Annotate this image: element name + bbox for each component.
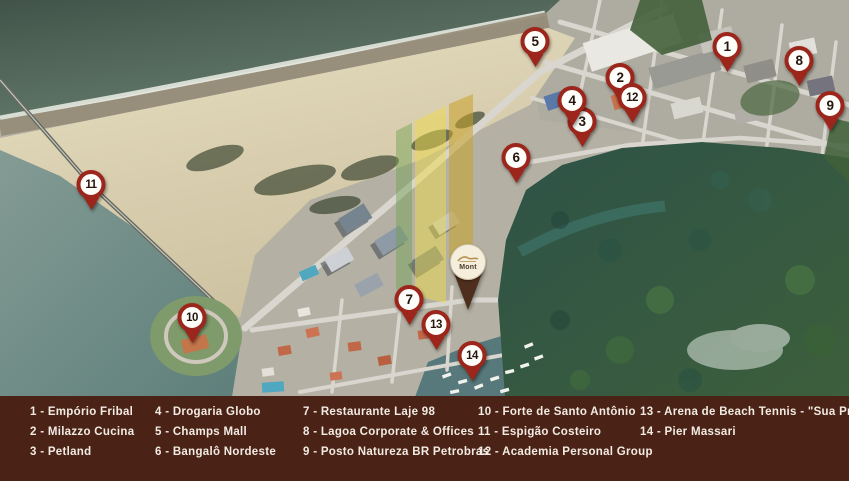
pin-tail-icon	[428, 337, 444, 350]
pin-number: 9	[816, 91, 845, 120]
pin-number: 1	[713, 32, 742, 61]
map-pin-1[interactable]: 1	[713, 32, 742, 72]
pin-number: 6	[502, 143, 531, 172]
location-map-page: Mont 1234567891011121314 1 - Empório Fri…	[0, 0, 849, 481]
logo-skyline-icon	[457, 254, 479, 263]
map-pin-4[interactable]: 4	[558, 86, 587, 126]
map-pin-11[interactable]: 11	[77, 170, 106, 210]
pin-tail-icon	[464, 368, 480, 381]
legend-item-5: 5 - Champs Mall	[155, 422, 276, 442]
legend-column-2: 4 - Drogaria Globo5 - Champs Mall6 - Ban…	[155, 402, 276, 462]
legend-item-9: 9 - Posto Natureza BR Petrobras	[303, 442, 489, 462]
development-logo: Mont	[450, 244, 486, 280]
pin-number: 8	[785, 46, 814, 75]
legend-column-5: 13 - Arena de Beach Tennis - "Sua Praia"…	[640, 402, 849, 442]
pin-tail-icon	[719, 59, 735, 72]
legend-item-2: 2 - Milazzo Cucina	[30, 422, 134, 442]
pin-tail-icon	[83, 197, 99, 210]
pin-tail-icon	[184, 330, 200, 343]
legend-bar: 1 - Empório Fribal2 - Milazzo Cucina3 - …	[0, 396, 849, 481]
map-pin-14[interactable]: 14	[458, 341, 487, 381]
legend-item-11: 11 - Espigão Costeiro	[478, 422, 653, 442]
pin-number: 12	[618, 83, 647, 112]
legend-item-12: 12 - Academia Personal Group	[478, 442, 653, 462]
pin-tail-icon	[527, 54, 543, 67]
pin-tail-icon	[401, 312, 417, 325]
legend-item-14: 14 - Pier Massari	[640, 422, 849, 442]
map-pin-13[interactable]: 13	[422, 310, 451, 350]
map-pin-12[interactable]: 12	[618, 83, 647, 123]
pin-tail-icon	[624, 110, 640, 123]
legend-column-3: 7 - Restaurante Laje 988 - Lagoa Corpora…	[303, 402, 489, 462]
legend-item-7: 7 - Restaurante Laje 98	[303, 402, 489, 422]
pin-number: 7	[395, 285, 424, 314]
pin-number: 14	[458, 341, 487, 370]
legend-item-3: 3 - Petland	[30, 442, 134, 462]
map-pin-8[interactable]: 8	[785, 46, 814, 86]
legend-item-1: 1 - Empório Fribal	[30, 402, 134, 422]
pin-number: 10	[178, 303, 207, 332]
map-pin-6[interactable]: 6	[502, 143, 531, 183]
legend-item-10: 10 - Forte de Santo Antônio	[478, 402, 653, 422]
legend-column-4: 10 - Forte de Santo Antônio11 - Espigão …	[478, 402, 653, 462]
legend-column-1: 1 - Empório Fribal2 - Milazzo Cucina3 - …	[30, 402, 134, 462]
map-pin-7[interactable]: 7	[395, 285, 424, 325]
map-pin-9[interactable]: 9	[816, 91, 845, 131]
pin-tail-icon	[822, 118, 838, 131]
pin-number: 13	[422, 310, 451, 339]
pin-number: 11	[77, 170, 106, 199]
pin-tail-icon	[508, 170, 524, 183]
pin-tail-icon	[574, 134, 590, 147]
pin-number: 5	[521, 27, 550, 56]
pin-number: 4	[558, 86, 587, 115]
legend-item-4: 4 - Drogaria Globo	[155, 402, 276, 422]
map-pin-5[interactable]: 5	[521, 27, 550, 67]
pin-tail-icon	[791, 73, 807, 86]
development-logo-text: Mont	[459, 264, 477, 271]
legend-item-13: 13 - Arena de Beach Tennis - "Sua Praia"	[640, 402, 849, 422]
legend-item-8: 8 - Lagoa Corporate & Offices	[303, 422, 489, 442]
legend-item-6: 6 - Bangalô Nordeste	[155, 442, 276, 462]
pin-tail-icon	[564, 113, 580, 126]
map-pin-10[interactable]: 10	[178, 303, 207, 343]
